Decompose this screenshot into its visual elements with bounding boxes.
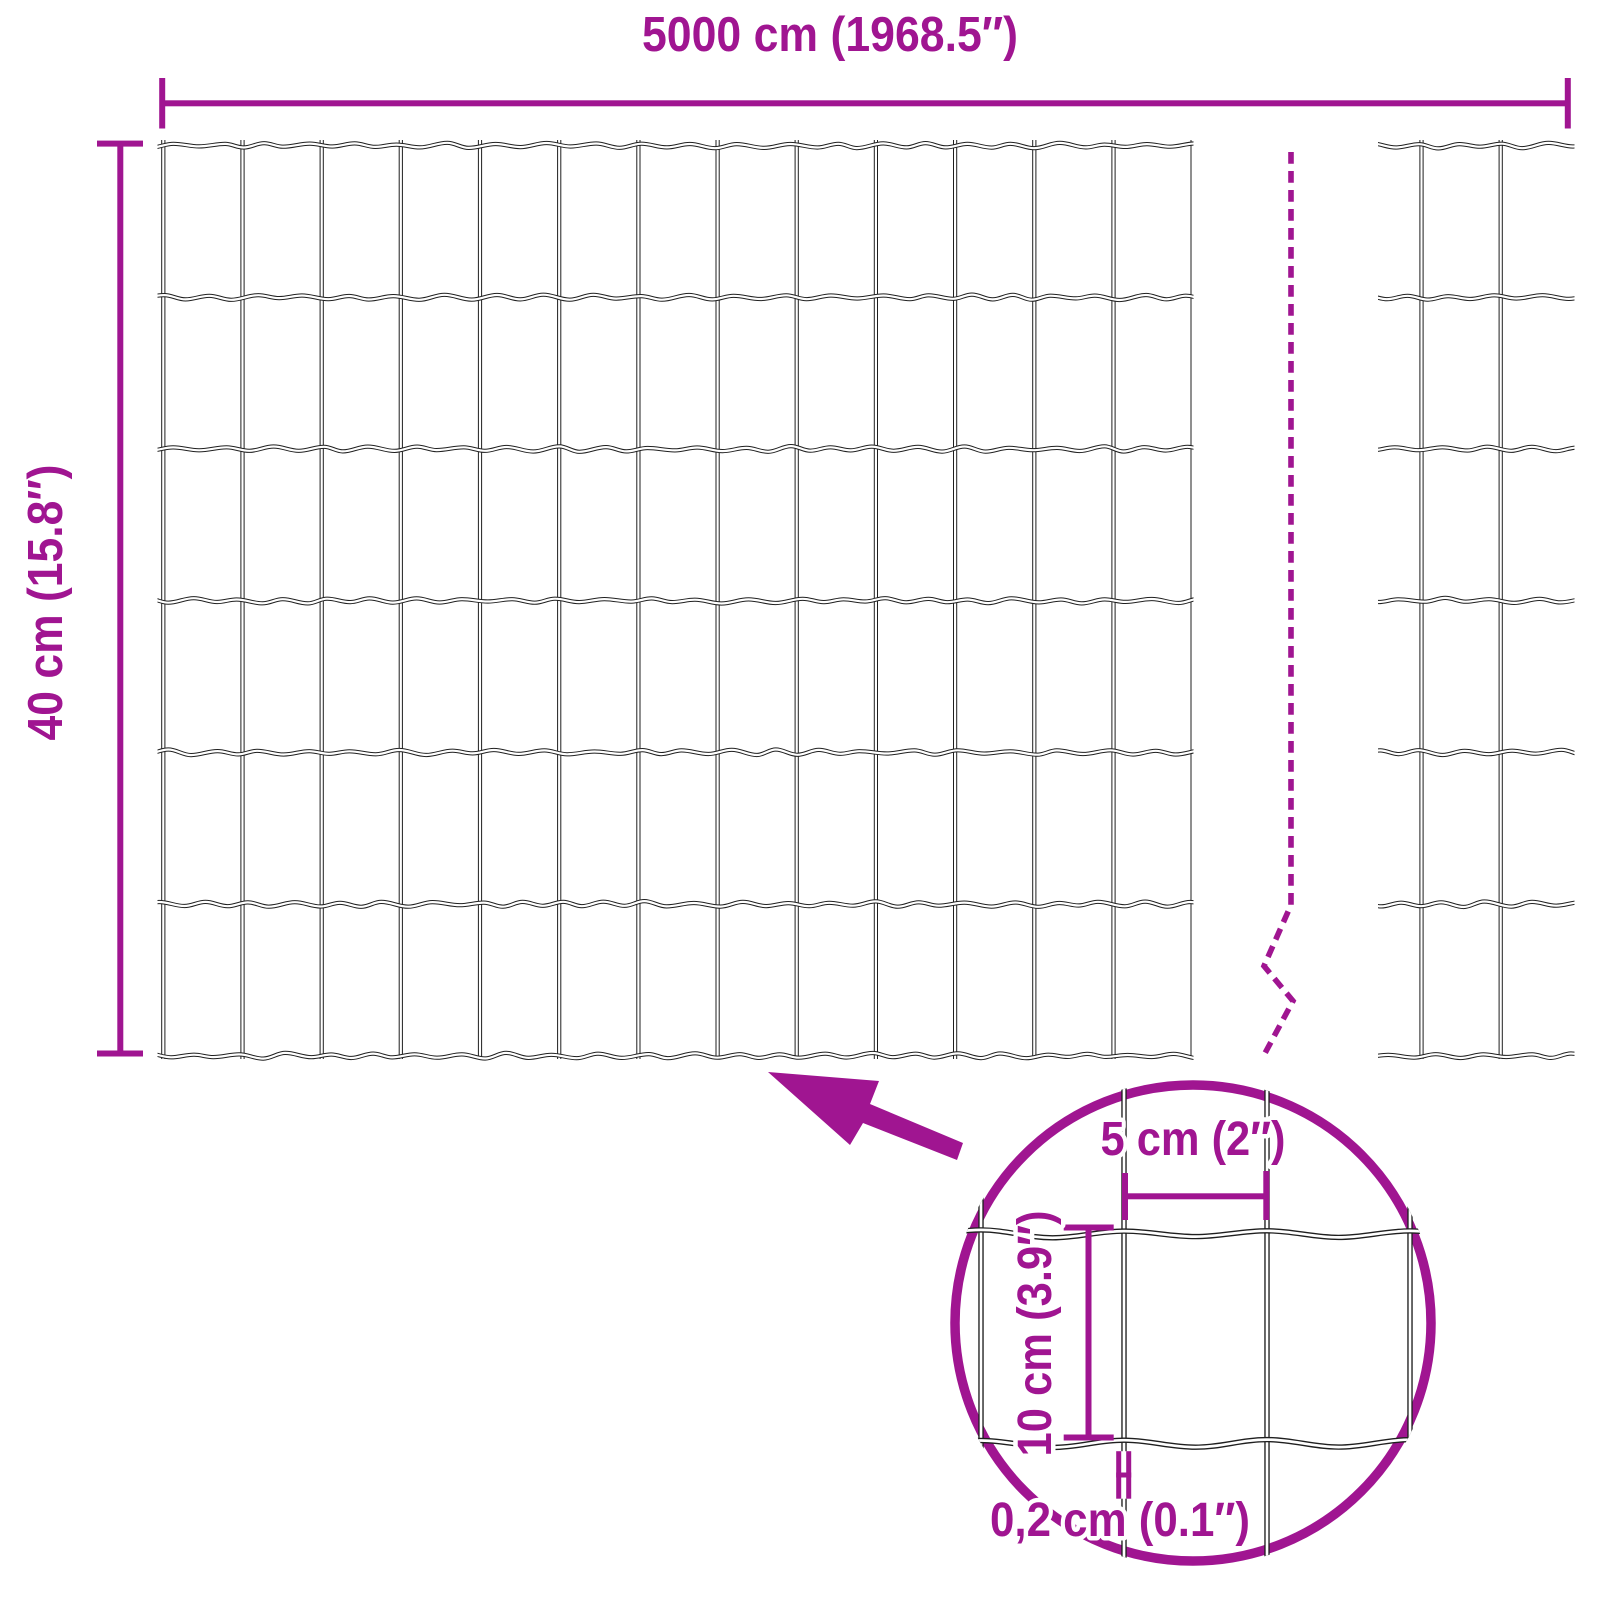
svg-text:5 cm (2″): 5 cm (2″)	[1101, 1113, 1286, 1166]
svg-text:5000 cm (1968.5″): 5000 cm (1968.5″)	[642, 8, 1018, 62]
svg-text:0,2 cm (0.1″): 0,2 cm (0.1″)	[990, 1494, 1250, 1547]
svg-text:40 cm (15.8″): 40 cm (15.8″)	[19, 465, 73, 741]
svg-text:10 cm (3.9″): 10 cm (3.9″)	[1009, 1211, 1062, 1457]
